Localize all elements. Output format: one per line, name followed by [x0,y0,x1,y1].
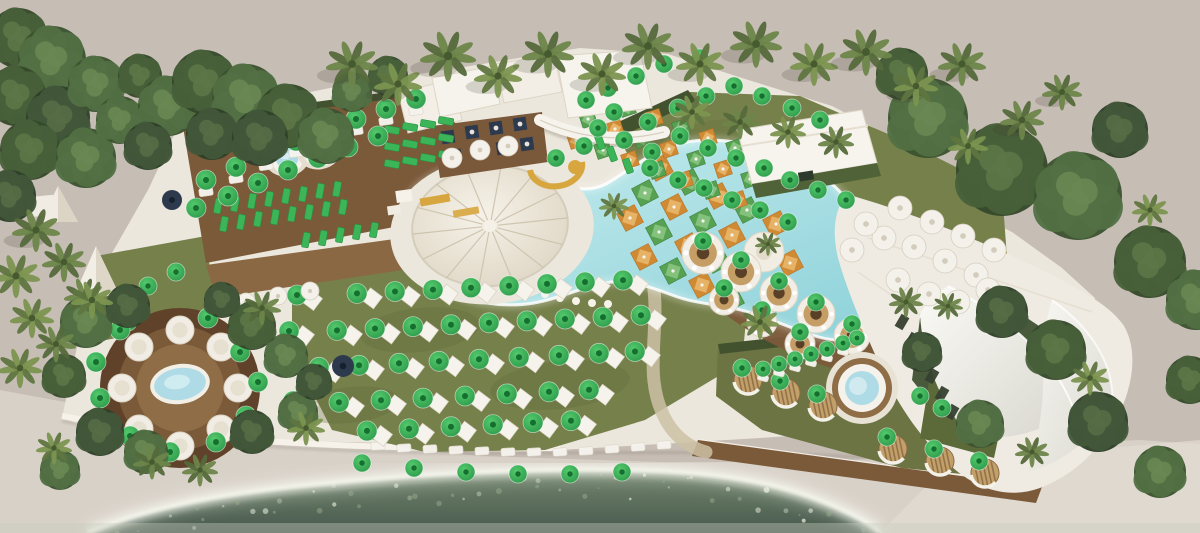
scene-canvas [0,0,1200,533]
shore-strip [0,523,1200,533]
jacuzzi [826,352,898,424]
beach-club-aerial-render: Beach club aerial render Aerial 3D archi… [0,0,1200,533]
